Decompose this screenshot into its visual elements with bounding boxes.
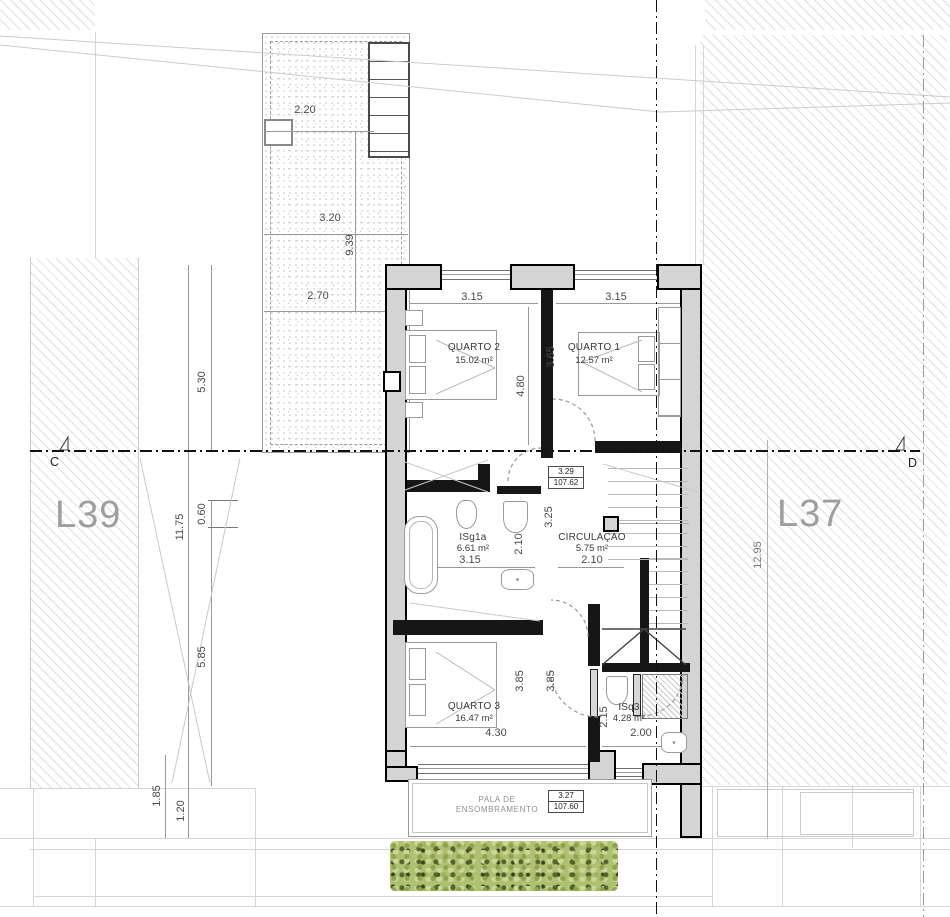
- room-area-isg1a: 6.61 m²: [457, 543, 489, 554]
- linework-overlay: [0, 0, 950, 917]
- room-name-quarto1: QUARTO 1: [568, 342, 620, 353]
- level-elevation: 107.62: [549, 477, 583, 488]
- dim-bath-height: 2.10: [513, 533, 525, 554]
- dim-bath-width: 3.15: [459, 554, 480, 566]
- level-height: 3.27: [549, 791, 583, 801]
- room-name-quarto2: QUARTO 2: [448, 342, 500, 353]
- dim-patio-320: 3.20: [319, 212, 340, 224]
- section-flags: [60, 437, 904, 450]
- dim-right-1295: 12.95: [752, 541, 764, 569]
- axis-line-vertical: [656, 0, 657, 917]
- room-area-circulacao: 5.75 m²: [576, 543, 608, 554]
- dim-left-185: 1.85: [151, 785, 163, 806]
- lot-label-l39: L39: [55, 494, 121, 537]
- section-line-cd: [30, 450, 920, 452]
- dim-patio-939: 9.39: [344, 234, 356, 255]
- room-name-circulacao: CIRCULAÇÃO: [558, 532, 626, 543]
- room-area-quarto1: 12.57 m²: [575, 355, 613, 366]
- site-slope-lines: [0, 36, 950, 112]
- room-name-quarto3: QUARTO 3: [448, 701, 500, 712]
- room-name-isq3: ISq3: [618, 702, 639, 713]
- canopy-label-line1: PALA DE: [479, 795, 516, 804]
- section-marker-d: D: [908, 456, 917, 470]
- break-lines: [140, 458, 698, 783]
- dim-q1-height: 3.65: [545, 346, 557, 367]
- level-elevation: 107.60: [549, 801, 583, 812]
- section-marker-c: C: [50, 455, 59, 469]
- floor-plan-drawing: 3.29 107.62 3.27 107.60 L39 L37 C D QUAR…: [0, 0, 950, 917]
- dim-q3-width: 4.30: [485, 727, 506, 739]
- canopy-label-line2: ENSOMBRAMENTO: [456, 805, 538, 814]
- level-marker-lower: 3.27 107.60: [548, 790, 584, 813]
- dim-circ-width: 2.10: [581, 554, 602, 566]
- room-area-quarto3: 16.47 m²: [455, 713, 493, 724]
- dim-left-585: 5.85: [196, 646, 208, 667]
- stair-arrow-triangle: [602, 629, 686, 665]
- level-marker-upper: 3.29 107.62: [548, 466, 584, 489]
- dim-q2-height: 4.80: [515, 375, 527, 396]
- dim-q3-height: 3.85: [514, 670, 526, 691]
- dim-hall-325: 3.25: [543, 506, 555, 527]
- dim-q1-width: 3.15: [605, 291, 626, 303]
- dim-q2-width: 3.15: [461, 291, 482, 303]
- dim-left-530: 5.30: [196, 371, 208, 392]
- dim-isq3-width: 2.00: [630, 727, 651, 739]
- boundary-axis-right: [923, 35, 924, 917]
- dim-patio-270: 2.70: [307, 290, 328, 302]
- dim-circ-height: 3.85: [545, 670, 557, 691]
- dim-left-060: 0.60: [196, 503, 208, 524]
- dim-patio-220: 2.20: [294, 104, 315, 116]
- lot-label-l37: L37: [777, 493, 843, 536]
- room-area-isq3: 4.28 m²: [613, 713, 645, 724]
- dim-left-1175: 11.75: [174, 514, 186, 541]
- dim-isq3-height: 2.15: [598, 706, 610, 727]
- dim-left-120: 1.20: [175, 800, 187, 821]
- room-area-quarto2: 15.02 m²: [455, 355, 493, 366]
- level-height: 3.29: [549, 467, 583, 477]
- room-name-isg1a: ISg1a: [459, 532, 486, 543]
